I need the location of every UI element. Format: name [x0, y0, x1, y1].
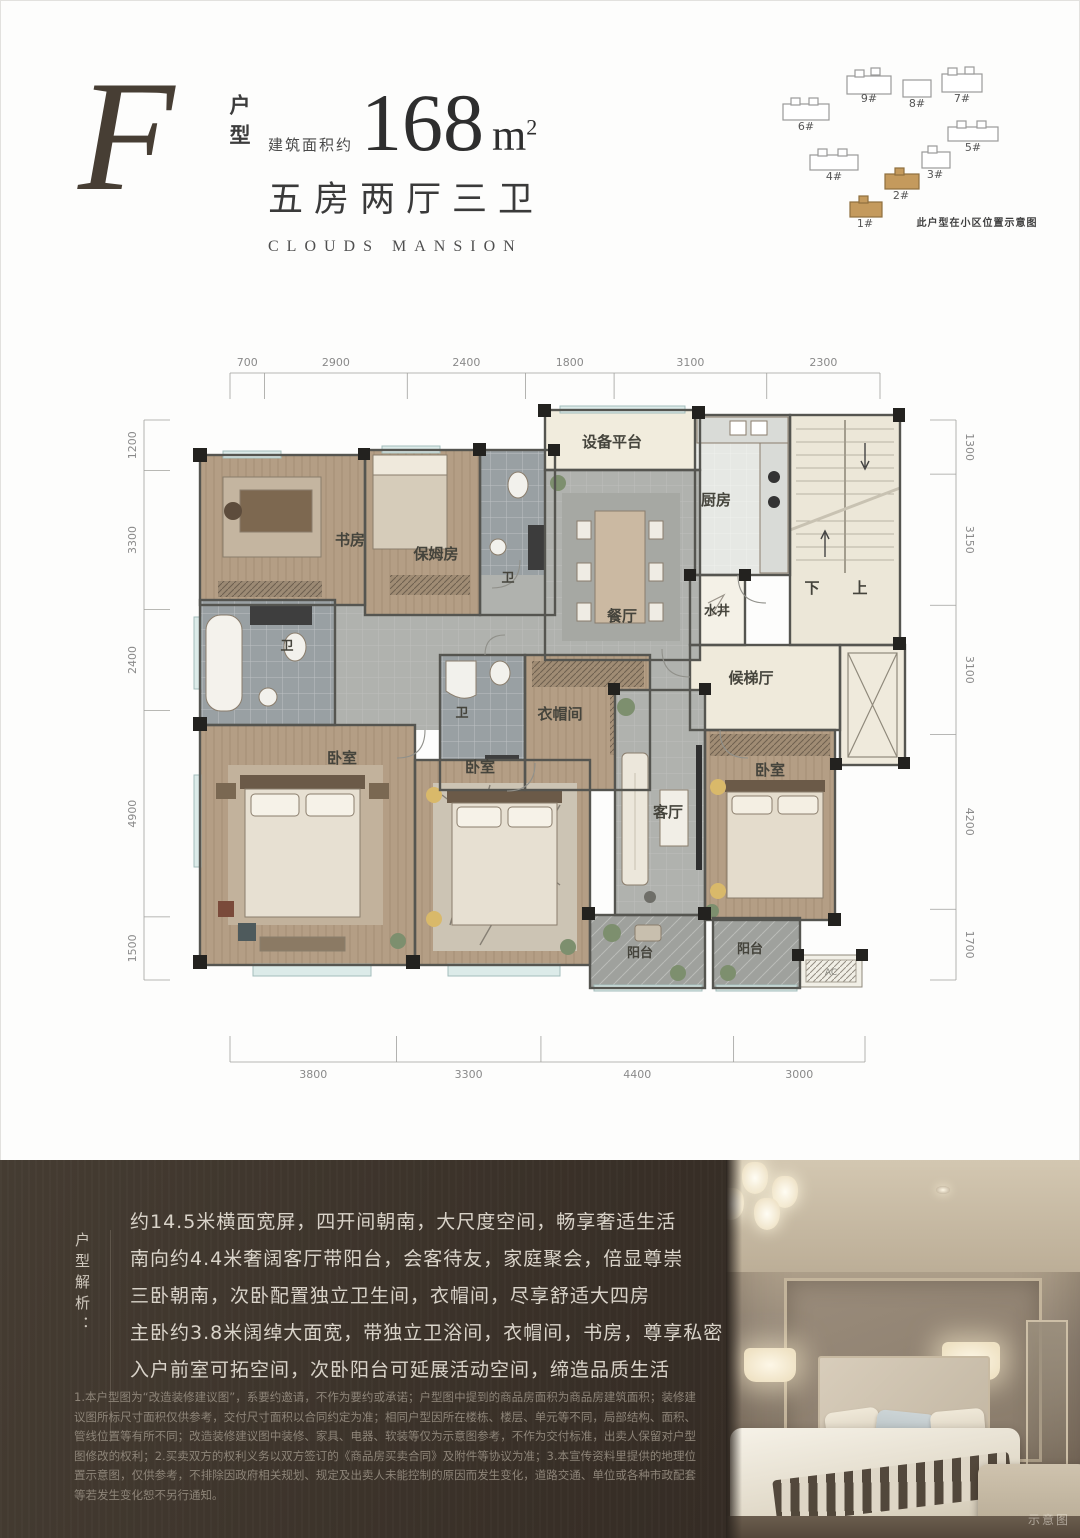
room-dining — [545, 470, 700, 660]
analysis-line: 南向约4.4米奢阔客厅带阳台，会客待友，家庭聚会，倍显尊崇 — [130, 1249, 730, 1270]
brand-name: CLOUDS MANSION — [268, 238, 568, 256]
label-cloakroom: 衣帽间 — [537, 705, 582, 723]
building-4: 4# — [810, 149, 858, 183]
label-ac: AC — [825, 968, 837, 978]
label-stairs-up: 上 — [852, 579, 867, 597]
photo-chandelier — [726, 1160, 858, 1254]
analysis-title: 户型解析： — [72, 1232, 93, 1337]
label-study: 书房 — [335, 531, 365, 549]
svg-text:7#: 7# — [954, 92, 970, 105]
label-bedroom-right: 卧室 — [755, 761, 785, 779]
building-2-highlight: 2# — [885, 168, 919, 202]
bedroom-photo: 示意图 — [726, 1160, 1080, 1538]
area-value: 168 — [361, 86, 484, 160]
svg-text:3100: 3100 — [676, 356, 704, 369]
area-prefix: 建筑面积约 — [268, 134, 353, 155]
label-bath-top: 卫 — [501, 571, 514, 586]
svg-text:3800: 3800 — [299, 1068, 327, 1081]
room-bath-left — [200, 600, 335, 725]
rooms-summary: 五房两厅三卫 — [268, 171, 568, 222]
dimensions-left: 12003300240049001500 — [126, 420, 170, 980]
room-bath-top — [480, 450, 555, 615]
svg-text:2900: 2900 — [322, 356, 350, 369]
siteplan: 9# 8# 7# 6# 5# 4# 3# 2# — [745, 50, 1065, 250]
label-bath-left: 卫 — [280, 639, 293, 654]
label-equipment-platform: 设备平台 — [582, 433, 642, 451]
svg-text:5#: 5# — [965, 141, 981, 154]
label-living: 客厅 — [652, 803, 683, 821]
svg-text:3100: 3100 — [963, 656, 976, 684]
header: 建筑面积约 168 m2 五房两厅三卫 CLOUDS MANSION — [268, 86, 568, 256]
unit-type-label: 户型 — [224, 94, 254, 154]
photo-floor — [726, 1516, 1080, 1538]
analysis-line: 约14.5米横面宽屏，四开间朝南，大尺度空间，畅享奢适生活 — [130, 1212, 730, 1233]
svg-text:1800: 1800 — [556, 356, 584, 369]
svg-text:3300: 3300 — [126, 526, 139, 554]
analysis-line: 入户前室可拓空间，次卧阳台可延展活动空间，缔造品质生活 — [130, 1360, 730, 1381]
room-study — [200, 455, 365, 605]
flyer-page: F 户型 建筑面积约 168 m2 五房两厅三卫 CLOUDS MANSION … — [0, 0, 1080, 1538]
svg-text:4900: 4900 — [126, 800, 139, 828]
room-nanny — [365, 450, 480, 615]
disclaimer-text: 1.本户型图为“改造装修建议图”，系要约邀请，不作为要约或承诺；户型图中提到的商… — [74, 1388, 696, 1505]
svg-text:1300: 1300 — [963, 433, 976, 461]
svg-text:3000: 3000 — [785, 1068, 813, 1081]
photo-lamp-left — [744, 1348, 796, 1382]
photo-spotlight — [936, 1186, 950, 1194]
analysis-line: 主卧约3.8米阔绰大面宽，带独立卫浴间，衣帽间，书房，尊享私密 — [130, 1323, 730, 1344]
label-bath-middle: 卫 — [455, 706, 468, 721]
svg-text:2400: 2400 — [126, 646, 139, 674]
label-elevator-hall: 候梯厅 — [728, 669, 773, 687]
label-kitchen: 厨房 — [701, 491, 731, 509]
photo-watermark: 示意图 — [1028, 1511, 1070, 1528]
room-bedroom-master — [200, 725, 415, 965]
svg-text:2300: 2300 — [809, 356, 837, 369]
room-bedroom-right — [705, 730, 835, 920]
label-nanny: 保姆房 — [412, 545, 458, 563]
svg-text:6#: 6# — [798, 120, 814, 133]
label-balcony-1: 阳台 — [627, 945, 653, 961]
label-dining: 餐厅 — [607, 607, 637, 625]
svg-text:1200: 1200 — [126, 431, 139, 459]
label-water-well: 水井 — [704, 603, 730, 619]
svg-text:1#: 1# — [857, 217, 873, 230]
svg-text:4400: 4400 — [623, 1068, 651, 1081]
svg-text:3#: 3# — [927, 168, 943, 181]
svg-text:4200: 4200 — [963, 808, 976, 836]
svg-text:8#: 8# — [909, 97, 925, 110]
photo-mirror — [1026, 1320, 1068, 1476]
building-5: 5# — [948, 121, 998, 154]
analysis-line: 三卧朝南，次卧配置独立卫生间，衣帽间，尽享舒适大四房 — [130, 1286, 730, 1307]
room-stairwell — [790, 415, 900, 645]
dimensions-top: 70029002400180031002300 — [230, 356, 880, 399]
svg-text:2400: 2400 — [452, 356, 480, 369]
building-7: 7# — [942, 67, 982, 105]
siteplan-caption: 此户型在小区位置示意图 — [917, 216, 1038, 229]
svg-text:3150: 3150 — [963, 526, 976, 554]
building-3: 3# — [922, 146, 950, 181]
svg-text:1500: 1500 — [126, 934, 139, 962]
label-balcony-2: 阳台 — [737, 941, 763, 957]
svg-text:700: 700 — [237, 356, 258, 369]
svg-text:4#: 4# — [826, 170, 842, 183]
building-1-highlight: 1# — [850, 196, 882, 230]
svg-text:3300: 3300 — [455, 1068, 483, 1081]
floorplan: 设备平台 厨房 餐厅 水井 下 上 候梯厅 书房 保姆房 卫 卫 卫 衣帽间 卧… — [90, 325, 980, 1085]
building-8: 8# — [903, 80, 931, 110]
dimensions-right: 13003150310042001700 — [930, 420, 976, 980]
svg-text:9#: 9# — [861, 92, 877, 105]
svg-text:1700: 1700 — [963, 931, 976, 959]
label-bedroom-master: 卧室 — [327, 749, 357, 767]
building-6: 6# — [783, 98, 829, 133]
area-unit-m: m — [492, 111, 526, 160]
building-9: 9# — [847, 68, 891, 105]
label-bedroom-second: 卧室 — [465, 758, 495, 776]
area-row: 建筑面积约 168 m2 — [268, 86, 568, 161]
label-stairs-down: 下 — [804, 579, 819, 597]
unit-type-letter: F — [78, 58, 175, 216]
room-elevator — [840, 645, 905, 765]
room-elevator-hall — [690, 645, 840, 730]
analysis-lines: 约14.5米横面宽屏，四开间朝南，大尺度空间，畅享奢适生活 南向约4.4米奢阔客… — [130, 1212, 730, 1397]
svg-text:2#: 2# — [893, 189, 909, 202]
dimensions-bottom: 3800330044003000 — [230, 1036, 865, 1081]
area-unit-sup: 2 — [526, 114, 537, 139]
area-unit: m2 — [492, 110, 537, 161]
